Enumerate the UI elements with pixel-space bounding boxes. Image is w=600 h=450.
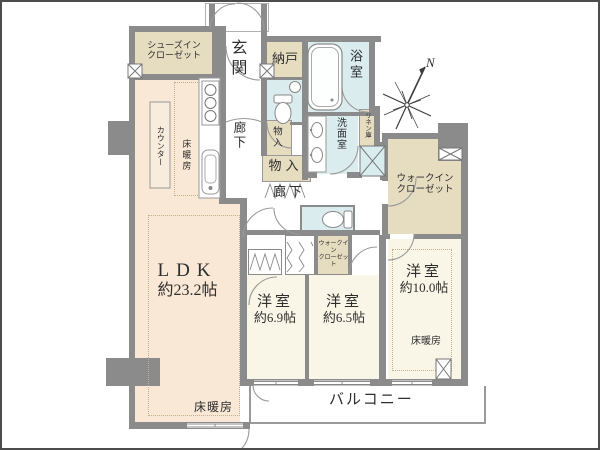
bedroom-10-name: 洋室: [386, 264, 462, 281]
wall: [414, 234, 468, 239]
ldk-size: 約23.2帖: [135, 282, 240, 300]
bedroom-10-heating-label: 床暖房: [411, 336, 441, 348]
shoes-closet-label-line1: シューズイン: [138, 40, 210, 50]
closet-bedroom-6-5: [285, 235, 315, 275]
ldk-heating-label: 床暖房: [194, 401, 233, 415]
ldk-name: LDK: [135, 260, 240, 282]
counter-label: カウンター: [156, 126, 165, 166]
wall: [265, 77, 303, 80]
wall: [382, 133, 388, 181]
bedroom-6-5-name: 洋室: [308, 294, 380, 311]
wic-large-label: ウォークイン クローゼット: [394, 174, 456, 196]
room-toilet-2: [300, 205, 355, 233]
floor-plan: 玄関 シューズイン クローゼット 納戸 浴室 洗面室 リネン庫 物入 物入 廊下…: [0, 0, 600, 450]
bedroom-6-5-label: 洋室 約6.5帖: [308, 294, 380, 326]
kitchen-heating-label: 床暖房: [181, 139, 191, 172]
wall: [129, 74, 219, 80]
wall: [209, 4, 215, 28]
wic-large-label-line1: ウォークイン: [394, 174, 456, 185]
linen-label: リネン庫: [363, 112, 370, 138]
room-bedroom-6-9: [247, 275, 305, 379]
pillar: [108, 121, 135, 155]
wall: [369, 36, 375, 116]
wall: [347, 172, 362, 178]
nando-label: 納戸: [265, 52, 305, 67]
wic-large-label-line2: クローゼット: [394, 185, 456, 196]
storage-large-label: 物入: [262, 159, 309, 174]
storage-small-label: 物入: [270, 126, 281, 149]
corridor-upper-label: 廊下: [231, 121, 245, 150]
compass-north-label: N: [426, 56, 435, 71]
wic-small-label-line1: ウォークイン: [316, 241, 351, 255]
bedroom-10-label: 洋室 約10.0帖: [386, 264, 462, 296]
closet-bedroom-6-9: [248, 249, 282, 275]
bedroom-6-5-size: 約6.5帖: [308, 311, 380, 326]
bath-label: 浴室: [347, 49, 362, 81]
shoes-closet-label-line2: クローゼット: [138, 50, 210, 60]
shoes-closet-label: シューズイン クローゼット: [138, 40, 210, 61]
wic-small-label-line2: クローゼット: [316, 255, 351, 269]
balcony-label: バルコニー: [329, 392, 414, 409]
wall: [240, 379, 468, 386]
ldk-label: LDK 約23.2帖: [135, 260, 240, 300]
washroom-label: 洗面室: [334, 117, 346, 150]
room-toilet-1: [265, 80, 302, 122]
wall: [379, 235, 386, 379]
bedroom-6-9-name: 洋室: [244, 294, 306, 311]
wall: [382, 133, 442, 139]
corridor-lower-label: 廊下: [268, 185, 310, 200]
wall: [219, 26, 226, 202]
wall: [305, 275, 309, 379]
compass-icon: [383, 67, 431, 129]
wall: [461, 154, 468, 385]
room-washroom: [308, 116, 358, 174]
room-bedroom-6-5: [309, 275, 379, 379]
wall: [129, 26, 219, 32]
wall: [129, 422, 250, 429]
wic-small-label: ウォークイン クローゼット: [316, 241, 351, 269]
bedroom-6-9-label: 洋室 約6.9帖: [244, 294, 306, 326]
floor-heating-area-ldk: [148, 215, 240, 416]
bedroom-6-9-size: 約6.9帖: [244, 311, 306, 326]
wall: [305, 112, 371, 116]
genkan-label: 玄関: [227, 39, 245, 79]
wall: [261, 36, 381, 42]
bedroom-10-size: 約10.0帖: [386, 281, 462, 296]
wall: [212, 26, 219, 76]
